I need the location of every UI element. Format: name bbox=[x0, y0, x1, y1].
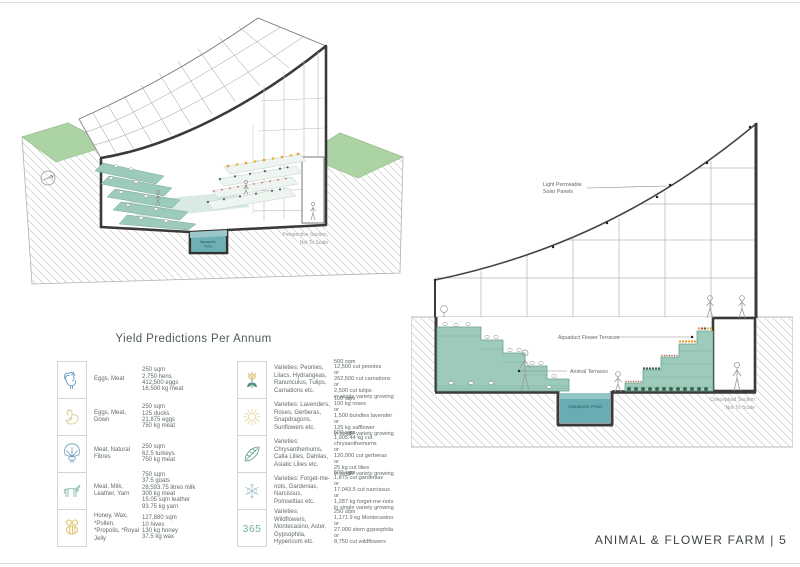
yield-row-values: 250 sqm62.5 turkeys750 kg meat bbox=[142, 435, 214, 473]
yield-row-winter-flowers: Varieties: Forget-me-nots, Gardenias, Na… bbox=[237, 472, 396, 510]
turkey-icon bbox=[57, 435, 87, 473]
yield-predictions-table: Yield Predictions Per Annum Eggs, Meat 2… bbox=[0, 333, 800, 558]
page-edge-top bbox=[0, 2, 800, 3]
animal-yield-column: Eggs, Meat 250 sqm2,750 hens412,500 eggs… bbox=[57, 362, 214, 547]
yield-row-duck: Eggs, Meat, Down 250 sqm125 ducks21,875 … bbox=[57, 398, 214, 436]
svg-text:Not To Scale: Not To Scale bbox=[300, 240, 328, 246]
yield-row-goat: Meat, Milk, Leather, Yarn 750 sqm37.5 go… bbox=[57, 472, 214, 510]
yield-row-turkey: Meat, Natural Fibres 250 sqm62.5 turkeys… bbox=[57, 435, 214, 473]
flower-yield-column: Varieties: Peonies, Lilacs, Hydrangeas, … bbox=[237, 362, 396, 547]
svg-text:Perspective Section,: Perspective Section, bbox=[282, 232, 328, 238]
yield-row-label: Varieties: Chrysanthemums, Calla Lilies,… bbox=[274, 435, 332, 473]
page-edge-bottom bbox=[0, 563, 800, 564]
snowflake-icon bbox=[237, 472, 267, 510]
leaf-icon bbox=[237, 435, 267, 473]
yield-row-label: Varieties: Peonies, Lilacs, Hydrangeas, … bbox=[274, 361, 332, 399]
yield-row-label: Varieties: Forget-me-nots, Gardenias, Na… bbox=[274, 472, 332, 510]
yield-row-chrysanthemums: Varieties: Chrysanthemums, Calla Lilies,… bbox=[237, 435, 396, 473]
sun-icon bbox=[237, 398, 267, 436]
aquaponic-pond-3d: Aquaponic Pond bbox=[190, 230, 227, 253]
pond-label: Aquaponic bbox=[200, 240, 216, 244]
goat-icon bbox=[57, 472, 87, 510]
rooster-icon bbox=[57, 361, 87, 399]
solar-label-2: Solar Panels bbox=[543, 189, 573, 195]
yield-row-label: Eggs, Meat, Down bbox=[94, 398, 140, 436]
yield-row-values: 500 sqm1,875 cut gardeniasor17,043.5 cut… bbox=[334, 472, 396, 510]
solar-roof-curve bbox=[434, 123, 757, 281]
yield-row-chicken: Eggs, Meat 250 sqm2,750 hens412,500 eggs… bbox=[57, 361, 214, 399]
yield-row-label: Varieties: Lavenders, Roses, Gerberas, S… bbox=[274, 398, 332, 436]
yield-row-tulips: Varieties: Peonies, Lilacs, Hydrangeas, … bbox=[237, 361, 396, 399]
yield-table-title: Yield Predictions Per Annum bbox=[57, 333, 330, 345]
yield-row-values: 500 sqm1,905.44 kg cut chrysanthemumsor1… bbox=[334, 435, 396, 473]
tree-icon bbox=[441, 306, 448, 317]
yield-row-values: 500 sqm12,500 cut peoniesor262,500 cut c… bbox=[334, 361, 396, 399]
pond-label-2: Pond bbox=[204, 245, 212, 249]
yield-row-values: 250 sqm125 ducks21,875 eggs750 kg meat bbox=[142, 398, 214, 436]
yield-row-values: 750 sqm37.5 goats28,593.75 litres milk30… bbox=[142, 472, 214, 510]
tulip-icon bbox=[237, 361, 267, 399]
glazing-grid bbox=[435, 161, 757, 317]
solar-label: Light Permeable bbox=[543, 182, 582, 188]
perspective-section-drawing: Aquaponic Pond Perspective Section, Not … bbox=[6, 6, 406, 298]
sheet-title-footer: ANIMAL & FLOWER FARM | 5 bbox=[0, 533, 787, 547]
duck-icon bbox=[57, 398, 87, 436]
yield-row-label: Meat, Natural Fibres bbox=[94, 435, 140, 473]
yield-row-label: Meat, Milk, Leather, Yarn bbox=[94, 472, 140, 510]
yield-row-values: 250 sqm2,750 hens412,500 eggs16,500 kg m… bbox=[142, 361, 214, 399]
yield-row-label: Eggs, Meat bbox=[94, 361, 140, 399]
